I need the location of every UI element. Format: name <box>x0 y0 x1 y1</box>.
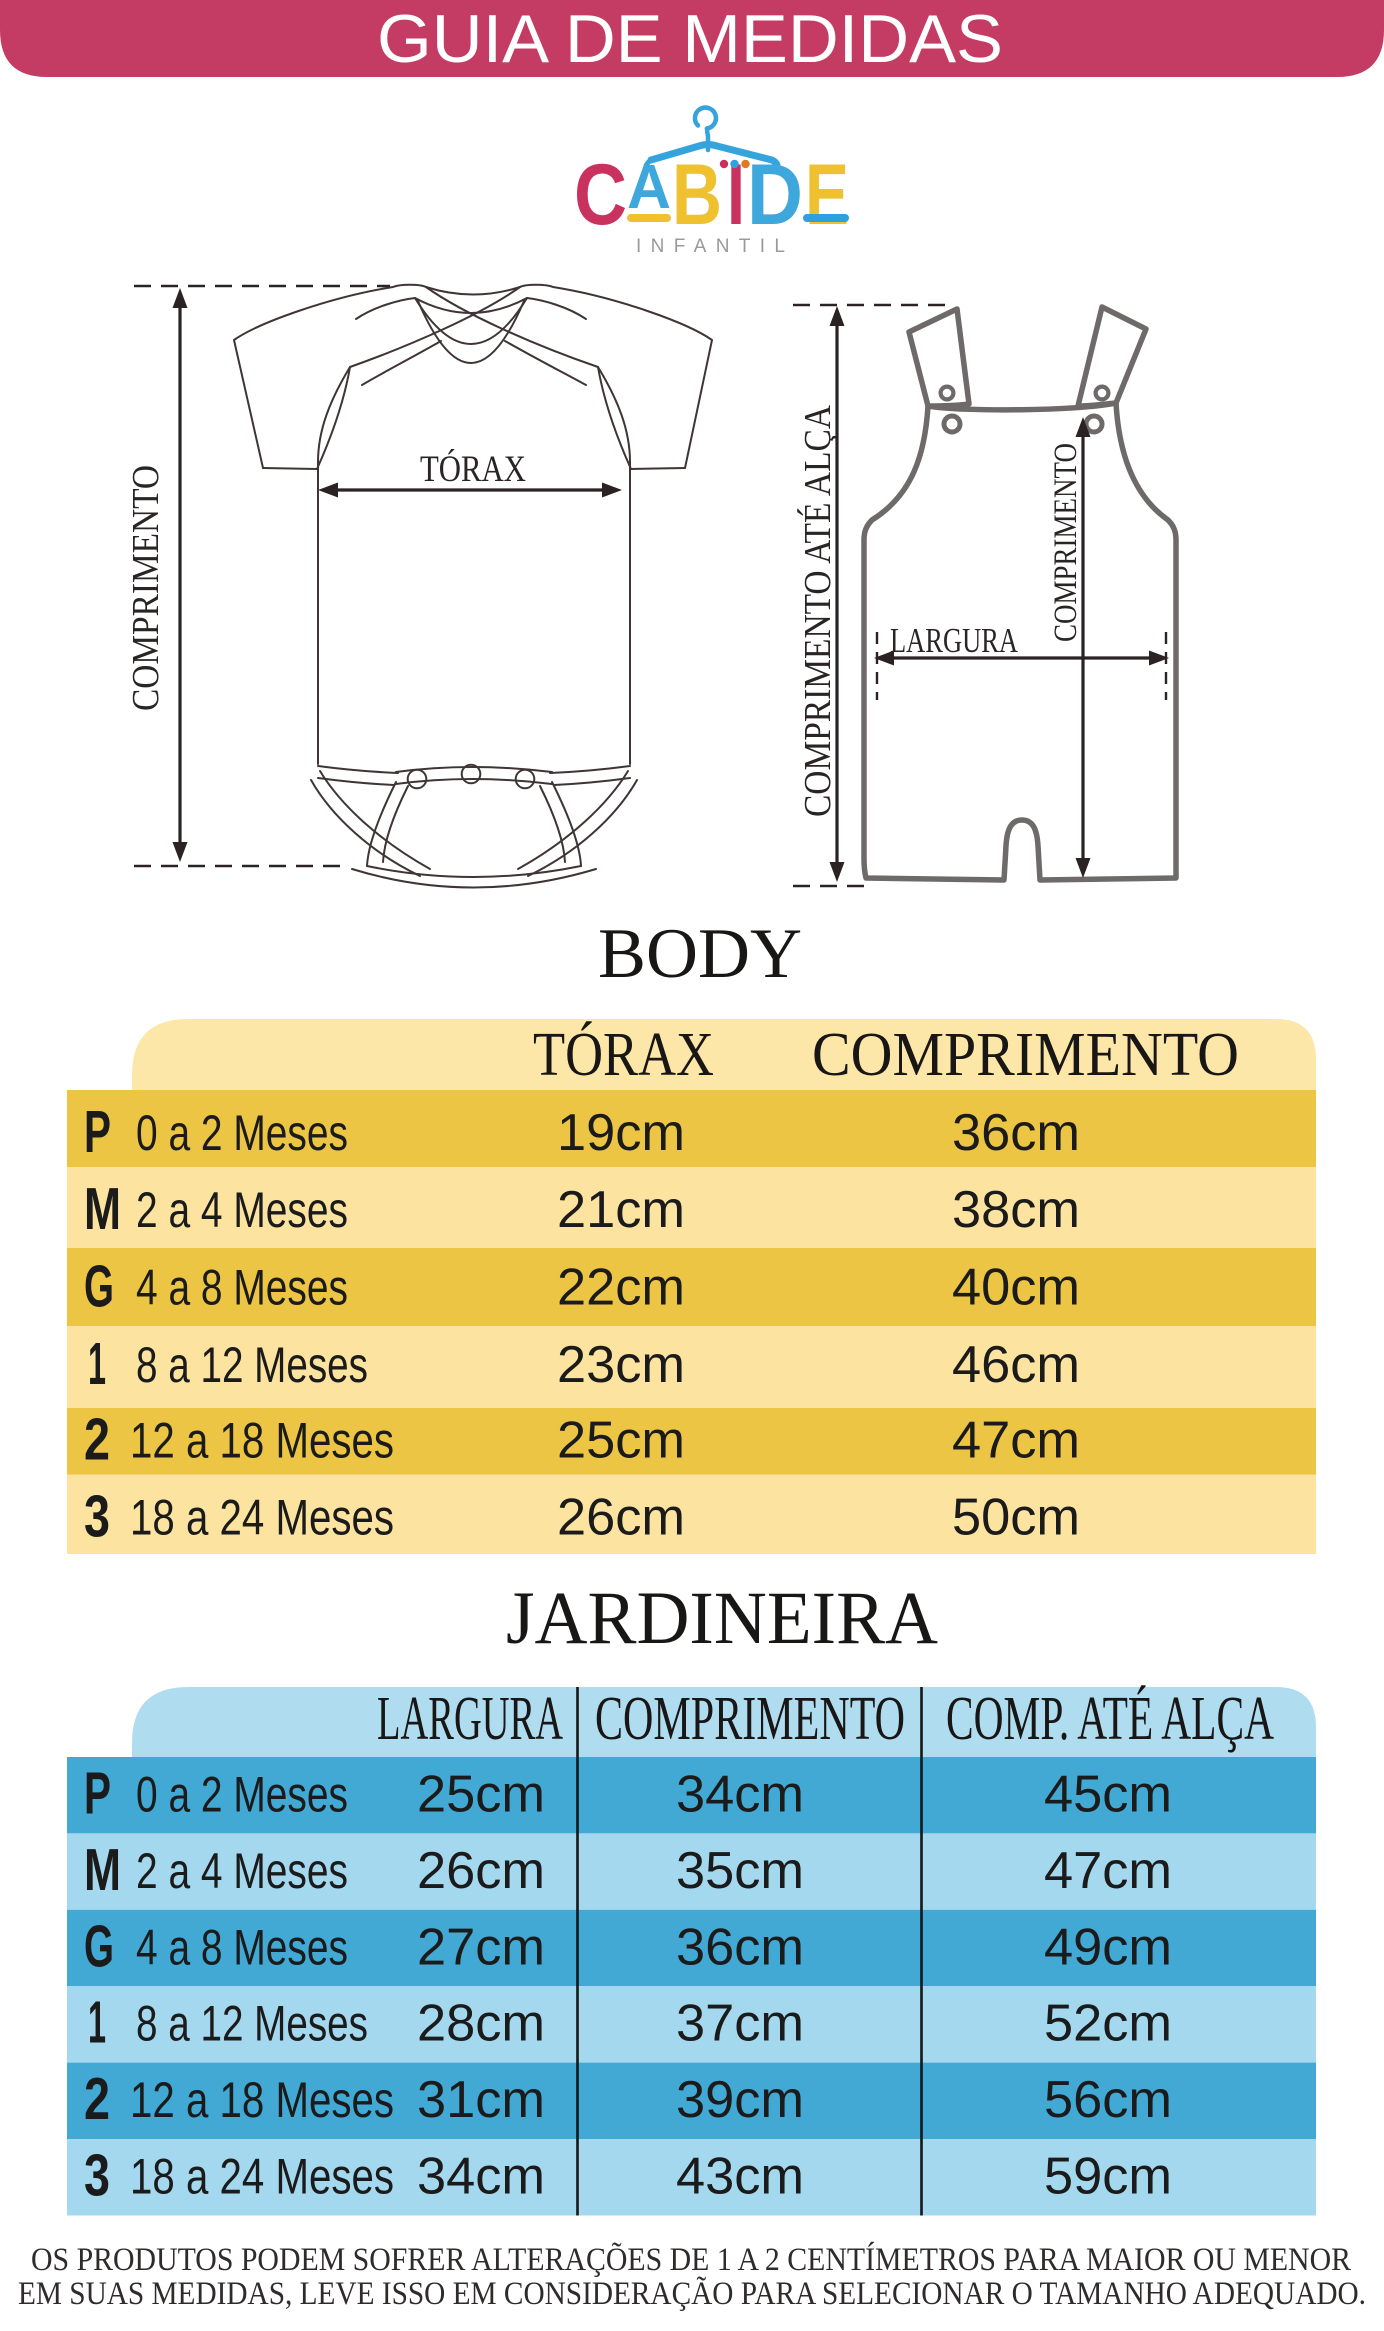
svg-text:40cm: 40cm <box>952 1259 1080 1317</box>
svg-text:8 a 12 Meses: 8 a 12 Meses <box>136 1337 368 1393</box>
svg-text:B: B <box>672 147 722 243</box>
svg-text:18 a 24 Meses: 18 a 24 Meses <box>130 2149 394 2205</box>
svg-text:22cm: 22cm <box>557 1259 685 1317</box>
svg-text:26cm: 26cm <box>417 1842 545 1900</box>
svg-text:28cm: 28cm <box>417 1995 545 2053</box>
svg-text:OS PRODUTOS PODEM SOFRER ALTER: OS PRODUTOS PODEM SOFRER ALTERAÇÕES DE 1… <box>31 2241 1351 2278</box>
svg-text:21cm: 21cm <box>557 1181 685 1239</box>
svg-text:LARGURA: LARGURA <box>890 621 1019 660</box>
svg-text:3: 3 <box>84 1484 110 1550</box>
svg-text:27cm: 27cm <box>417 1918 545 1976</box>
svg-text:36cm: 36cm <box>676 1918 804 1976</box>
svg-text:GUIA DE MEDIDAS: GUIA DE MEDIDAS <box>377 1 1003 77</box>
svg-text:38cm: 38cm <box>952 1181 1080 1239</box>
svg-text:LARGURA: LARGURA <box>377 1685 563 1753</box>
svg-text:G: G <box>84 1913 114 1979</box>
svg-text:2: 2 <box>84 1407 110 1473</box>
svg-text:25cm: 25cm <box>557 1412 685 1470</box>
svg-text:0 a 2 Meses: 0 a 2 Meses <box>136 1105 348 1161</box>
svg-text:34cm: 34cm <box>417 2148 545 2206</box>
svg-text:3: 3 <box>84 2143 110 2209</box>
svg-text:34cm: 34cm <box>676 1766 804 1824</box>
svg-text:43cm: 43cm <box>676 2148 804 2206</box>
svg-text:TÓRAX: TÓRAX <box>420 448 526 490</box>
svg-text:19cm: 19cm <box>557 1104 685 1162</box>
svg-text:P: P <box>84 1099 111 1165</box>
svg-text:18 a 24 Meses: 18 a 24 Meses <box>130 1490 394 1546</box>
svg-text:TÓRAX: TÓRAX <box>533 1021 714 1089</box>
svg-text:49cm: 49cm <box>1044 1918 1172 1976</box>
svg-text:37cm: 37cm <box>676 1995 804 2053</box>
svg-text:8 a 12 Meses: 8 a 12 Meses <box>136 1996 368 2052</box>
svg-text:E: E <box>805 147 849 243</box>
svg-text:26cm: 26cm <box>557 1489 685 1547</box>
svg-text:31cm: 31cm <box>417 2071 545 2129</box>
svg-text:P: P <box>84 1761 111 1827</box>
svg-text:M: M <box>84 1837 121 1903</box>
svg-text:1: 1 <box>88 1990 106 2056</box>
svg-text:EM SUAS MEDIDAS, LEVE ISSO EM: EM SUAS MEDIDAS, LEVE ISSO EM CONSIDERAÇ… <box>18 2275 1366 2312</box>
svg-text:2: 2 <box>84 2066 110 2132</box>
svg-text:JARDINEIRA: JARDINEIRA <box>506 1577 938 1660</box>
svg-text:COMPRIMENTO: COMPRIMENTO <box>812 1021 1239 1089</box>
svg-text:39cm: 39cm <box>676 2071 804 2129</box>
svg-text:COMPRIMENTO: COMPRIMENTO <box>1048 443 1084 642</box>
svg-text:G: G <box>84 1254 114 1320</box>
svg-text:0 a 2 Meses: 0 a 2 Meses <box>136 1767 348 1823</box>
svg-text:D: D <box>747 147 803 243</box>
svg-text:COMPRIMENTO: COMPRIMENTO <box>125 465 167 711</box>
svg-text:35cm: 35cm <box>676 1842 804 1900</box>
svg-text:25cm: 25cm <box>417 1766 545 1824</box>
svg-text:59cm: 59cm <box>1044 2148 1172 2206</box>
svg-text:C: C <box>574 147 627 243</box>
svg-text:4 a 8 Meses: 4 a 8 Meses <box>136 1919 348 1975</box>
svg-text:47cm: 47cm <box>952 1412 1080 1470</box>
svg-text:46cm: 46cm <box>952 1336 1080 1394</box>
svg-text:50cm: 50cm <box>952 1489 1080 1547</box>
svg-text:12 a 18 Meses: 12 a 18 Meses <box>130 1413 394 1469</box>
svg-text:1: 1 <box>88 1331 106 1397</box>
svg-text:52cm: 52cm <box>1044 1995 1172 2053</box>
svg-text:COMP. ATÉ ALÇA: COMP. ATÉ ALÇA <box>946 1685 1274 1753</box>
svg-text:2 a 4 Meses: 2 a 4 Meses <box>136 1182 348 1238</box>
svg-text:45cm: 45cm <box>1044 1766 1172 1824</box>
svg-text:36cm: 36cm <box>952 1104 1080 1162</box>
svg-text:2 a 4 Meses: 2 a 4 Meses <box>136 1843 348 1899</box>
svg-text:4 a 8 Meses: 4 a 8 Meses <box>136 1260 348 1316</box>
svg-text:COMPRIMENTO: COMPRIMENTO <box>595 1685 905 1753</box>
svg-text:56cm: 56cm <box>1044 2071 1172 2129</box>
svg-text:A: A <box>627 153 671 222</box>
svg-text:47cm: 47cm <box>1044 1842 1172 1900</box>
svg-text:23cm: 23cm <box>557 1336 685 1394</box>
svg-text:M: M <box>84 1176 121 1242</box>
svg-text:COMPRIMENTO ATÉ ALÇA: COMPRIMENTO ATÉ ALÇA <box>797 405 839 817</box>
svg-text:12 a 18 Meses: 12 a 18 Meses <box>130 2072 394 2128</box>
svg-text:BODY: BODY <box>598 915 802 993</box>
